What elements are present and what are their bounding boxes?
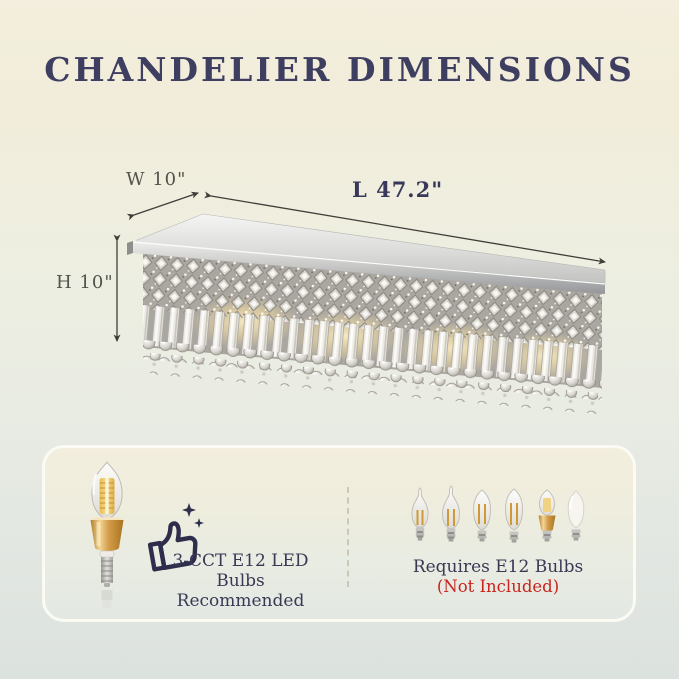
torpedo-filament-bulb-icon [474, 490, 491, 542]
gold-base-led-bulb-icon [539, 490, 556, 542]
flame-tip-filament-bulb-icon [443, 486, 460, 542]
e12-bulb-row [403, 482, 599, 554]
recommendation-line1: 3-CCT E12 LED [158, 551, 323, 571]
bulb-reflection [102, 590, 113, 608]
chandelier-illustration [127, 214, 605, 414]
flame-tip-filament-bulb-icon [412, 488, 428, 541]
canopy-left-cap [127, 241, 133, 255]
requirement-line1: Requires E12 Bulbs [400, 557, 596, 577]
width-arrow [134, 193, 198, 215]
requirement-text: Requires E12 Bulbs (Not Included) [400, 557, 596, 597]
gold-base-e12-led-bulb-icon [79, 458, 135, 610]
torpedo-filament-bulb-icon [506, 489, 523, 543]
recommendation-line2: Bulbs Recommended [158, 571, 323, 611]
frosted-torpedo-bulb-icon [568, 491, 584, 541]
recommendation-text: 3-CCT E12 LED Bulbs Recommended [158, 551, 323, 611]
vertical-divider [347, 487, 349, 587]
requirement-line2: (Not Included) [400, 577, 596, 597]
product-dimension-infographic: CHANDELIER DIMENSIONS W 10" L 47.2" H 10… [0, 0, 679, 679]
sparkle-icon [182, 503, 204, 528]
